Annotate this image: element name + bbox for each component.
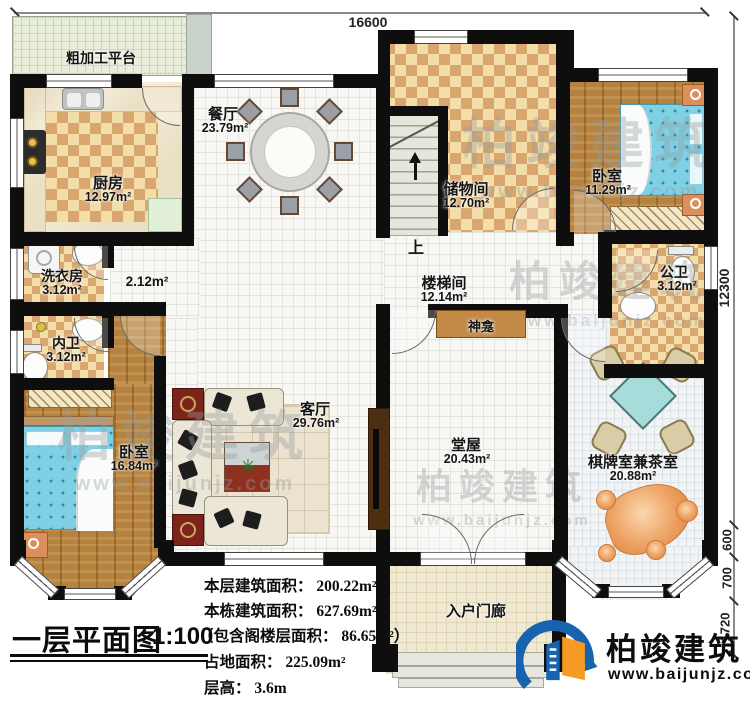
dimension-700: 700 bbox=[720, 567, 735, 589]
room-label-porch: 入户门廊 bbox=[446, 600, 506, 621]
stair-arrow-stem bbox=[414, 162, 417, 180]
wall bbox=[166, 552, 224, 566]
room-area-bedroom2: 11.29m² bbox=[585, 183, 631, 197]
stone-stool bbox=[676, 500, 698, 522]
bed bbox=[20, 426, 114, 530]
wall bbox=[182, 86, 194, 246]
stone-stool bbox=[646, 540, 666, 560]
dimension-top: 16600 bbox=[349, 14, 388, 30]
title-underline-2 bbox=[10, 660, 208, 662]
bed-blanket bbox=[621, 105, 652, 195]
plant: ✳ bbox=[238, 458, 258, 478]
side-table-decor bbox=[180, 396, 196, 412]
window bbox=[10, 330, 24, 374]
wall bbox=[384, 106, 446, 116]
wall bbox=[554, 304, 568, 562]
wall bbox=[378, 30, 390, 88]
kitchen-sink bbox=[62, 88, 104, 110]
shrine-label: 神龛 bbox=[468, 316, 494, 335]
logo-icon bbox=[516, 618, 600, 702]
plan-title: 一层平面图 bbox=[12, 617, 162, 659]
side-table-decor bbox=[180, 522, 196, 538]
wall bbox=[604, 230, 718, 244]
wall bbox=[384, 552, 420, 566]
dining-chair bbox=[280, 88, 299, 107]
dimension-600: 600 bbox=[720, 529, 735, 551]
burner bbox=[27, 137, 38, 148]
wall bbox=[556, 30, 570, 246]
bed-blanket bbox=[76, 449, 113, 531]
wall bbox=[372, 644, 398, 672]
stairs-up-label: 上 bbox=[408, 234, 424, 258]
logo-name: 柏竣建筑 bbox=[606, 624, 742, 669]
company-logo: 柏竣建筑 www.baijunjz.com bbox=[516, 618, 748, 704]
room-area-dining: 23.79m² bbox=[202, 121, 249, 135]
room-area-living: 29.76m² bbox=[293, 416, 340, 430]
title-underline bbox=[10, 654, 208, 657]
bed bbox=[620, 104, 708, 196]
stone-stool bbox=[596, 490, 616, 510]
window bbox=[10, 248, 24, 300]
room-area-publicbath: 3.12m² bbox=[657, 279, 697, 293]
bed-pillow bbox=[70, 431, 108, 446]
room-area-stairwell: 12.14m² bbox=[421, 290, 468, 304]
dimension-line-right bbox=[733, 16, 735, 658]
dining-chair bbox=[280, 196, 299, 215]
platform-column bbox=[186, 14, 212, 76]
bay-window bbox=[608, 586, 664, 598]
wall bbox=[438, 106, 448, 236]
room-area-laundry: 3.12m² bbox=[42, 283, 82, 297]
room-area-innerbath: 3.12m² bbox=[46, 350, 86, 364]
room-area-storage: 12.70m² bbox=[443, 196, 490, 210]
room-label-platform: 粗加工平台 bbox=[66, 48, 136, 68]
sink-basin bbox=[67, 93, 81, 107]
dimension-right: 12300 bbox=[716, 269, 732, 308]
wall bbox=[604, 364, 718, 378]
wall bbox=[598, 232, 612, 318]
room-area-hallway: 2.12m² bbox=[126, 274, 169, 289]
room-area-chess: 20.88m² bbox=[610, 469, 657, 483]
sink-basin bbox=[86, 93, 100, 107]
fridge bbox=[148, 198, 182, 232]
wardrobe bbox=[28, 388, 112, 408]
hanging-lamp bbox=[36, 322, 46, 332]
wall bbox=[378, 30, 574, 44]
kitchen-tile bbox=[46, 112, 158, 222]
tv-cabinet bbox=[368, 408, 390, 530]
dining-chair bbox=[226, 142, 245, 161]
floor-plan: ✳ 粗加工平台 厨房 12.97m² 餐厅 23.79m² 储物间 12.70m… bbox=[0, 0, 750, 709]
coffee-table: ✳ bbox=[224, 442, 270, 492]
wall bbox=[154, 356, 166, 548]
window bbox=[10, 118, 24, 188]
stat-floor-height: 层高： 3.6m bbox=[204, 676, 287, 698]
wall bbox=[324, 552, 388, 566]
wall bbox=[10, 302, 166, 316]
stat-building-area: 本栋建筑面积： 627.69m² bbox=[204, 599, 377, 621]
bed-pillow bbox=[689, 153, 703, 185]
room-area-hall: 20.43m² bbox=[444, 452, 491, 466]
publicbath-sink bbox=[620, 292, 656, 320]
bed-headboard bbox=[20, 416, 114, 426]
stat-attic-area: （包含阁楼层面积： 86.65m²） bbox=[198, 624, 409, 646]
toilet-tank bbox=[668, 246, 694, 255]
room-area-bedroom1: 16.84m² bbox=[111, 459, 158, 473]
dining-table-top bbox=[264, 126, 316, 178]
window bbox=[46, 74, 112, 88]
window bbox=[214, 74, 334, 88]
wall bbox=[704, 68, 718, 552]
burner bbox=[27, 156, 38, 167]
logo-url: www.baijunjz.com bbox=[608, 666, 750, 684]
dining-chair bbox=[334, 142, 353, 161]
window bbox=[224, 552, 324, 566]
room-area-kitchen: 12.97m² bbox=[85, 190, 132, 204]
bay-window bbox=[64, 588, 116, 600]
toilet bbox=[22, 344, 42, 352]
wall bbox=[10, 378, 114, 390]
stat-floor-area: 本层建筑面积： 200.22m² bbox=[204, 574, 377, 596]
stat-footprint-area: 占地面积： 225.09m² bbox=[204, 650, 346, 672]
stone-stool bbox=[598, 544, 616, 562]
window bbox=[598, 68, 688, 82]
window bbox=[414, 30, 468, 44]
bed-pillow bbox=[26, 431, 64, 446]
bed-pillow bbox=[689, 113, 703, 145]
